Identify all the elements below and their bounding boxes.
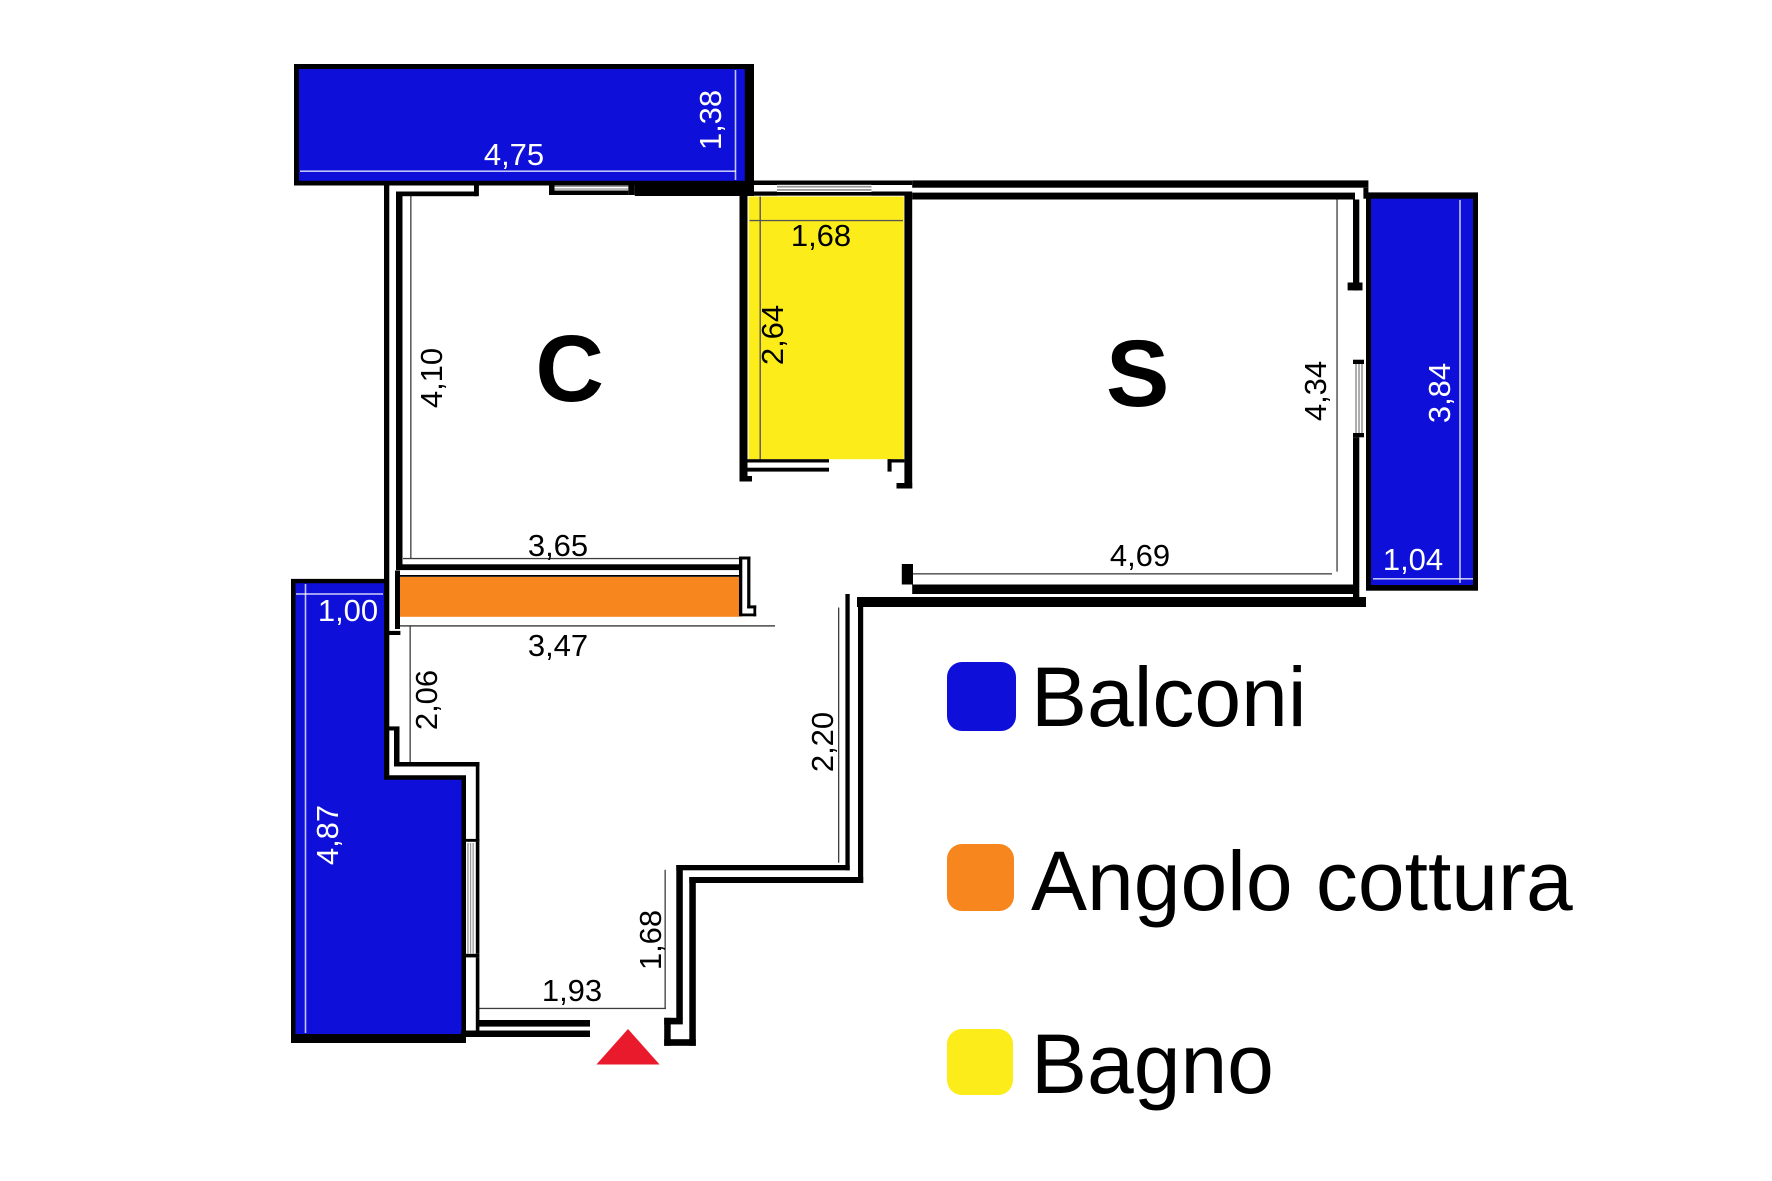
svg-text:2,64: 2,64 [755, 305, 790, 365]
svg-text:2,20: 2,20 [805, 712, 840, 772]
svg-text:1,04: 1,04 [1383, 542, 1443, 577]
svg-text:4,87: 4,87 [310, 805, 345, 865]
svg-text:1,38: 1,38 [693, 90, 728, 150]
svg-text:3,84: 3,84 [1422, 363, 1457, 423]
svg-text:4,69: 4,69 [1110, 538, 1170, 573]
svg-text:1,00: 1,00 [318, 593, 378, 628]
svg-text:3,47: 3,47 [528, 628, 588, 663]
svg-text:4,75: 4,75 [484, 137, 544, 172]
svg-text:Balconi: Balconi [1031, 650, 1307, 744]
svg-text:4,34: 4,34 [1298, 361, 1333, 421]
svg-text:S: S [1106, 321, 1169, 427]
svg-text:2,06: 2,06 [409, 670, 444, 730]
svg-text:Bagno: Bagno [1031, 1017, 1274, 1111]
svg-text:Angolo cottura: Angolo cottura [1031, 834, 1573, 928]
svg-text:1,68: 1,68 [633, 910, 668, 970]
svg-text:1,93: 1,93 [542, 973, 602, 1008]
svg-text:4,10: 4,10 [414, 348, 449, 408]
svg-text:3,65: 3,65 [528, 528, 588, 563]
svg-text:1,68: 1,68 [791, 218, 851, 253]
svg-text:C: C [535, 316, 604, 422]
